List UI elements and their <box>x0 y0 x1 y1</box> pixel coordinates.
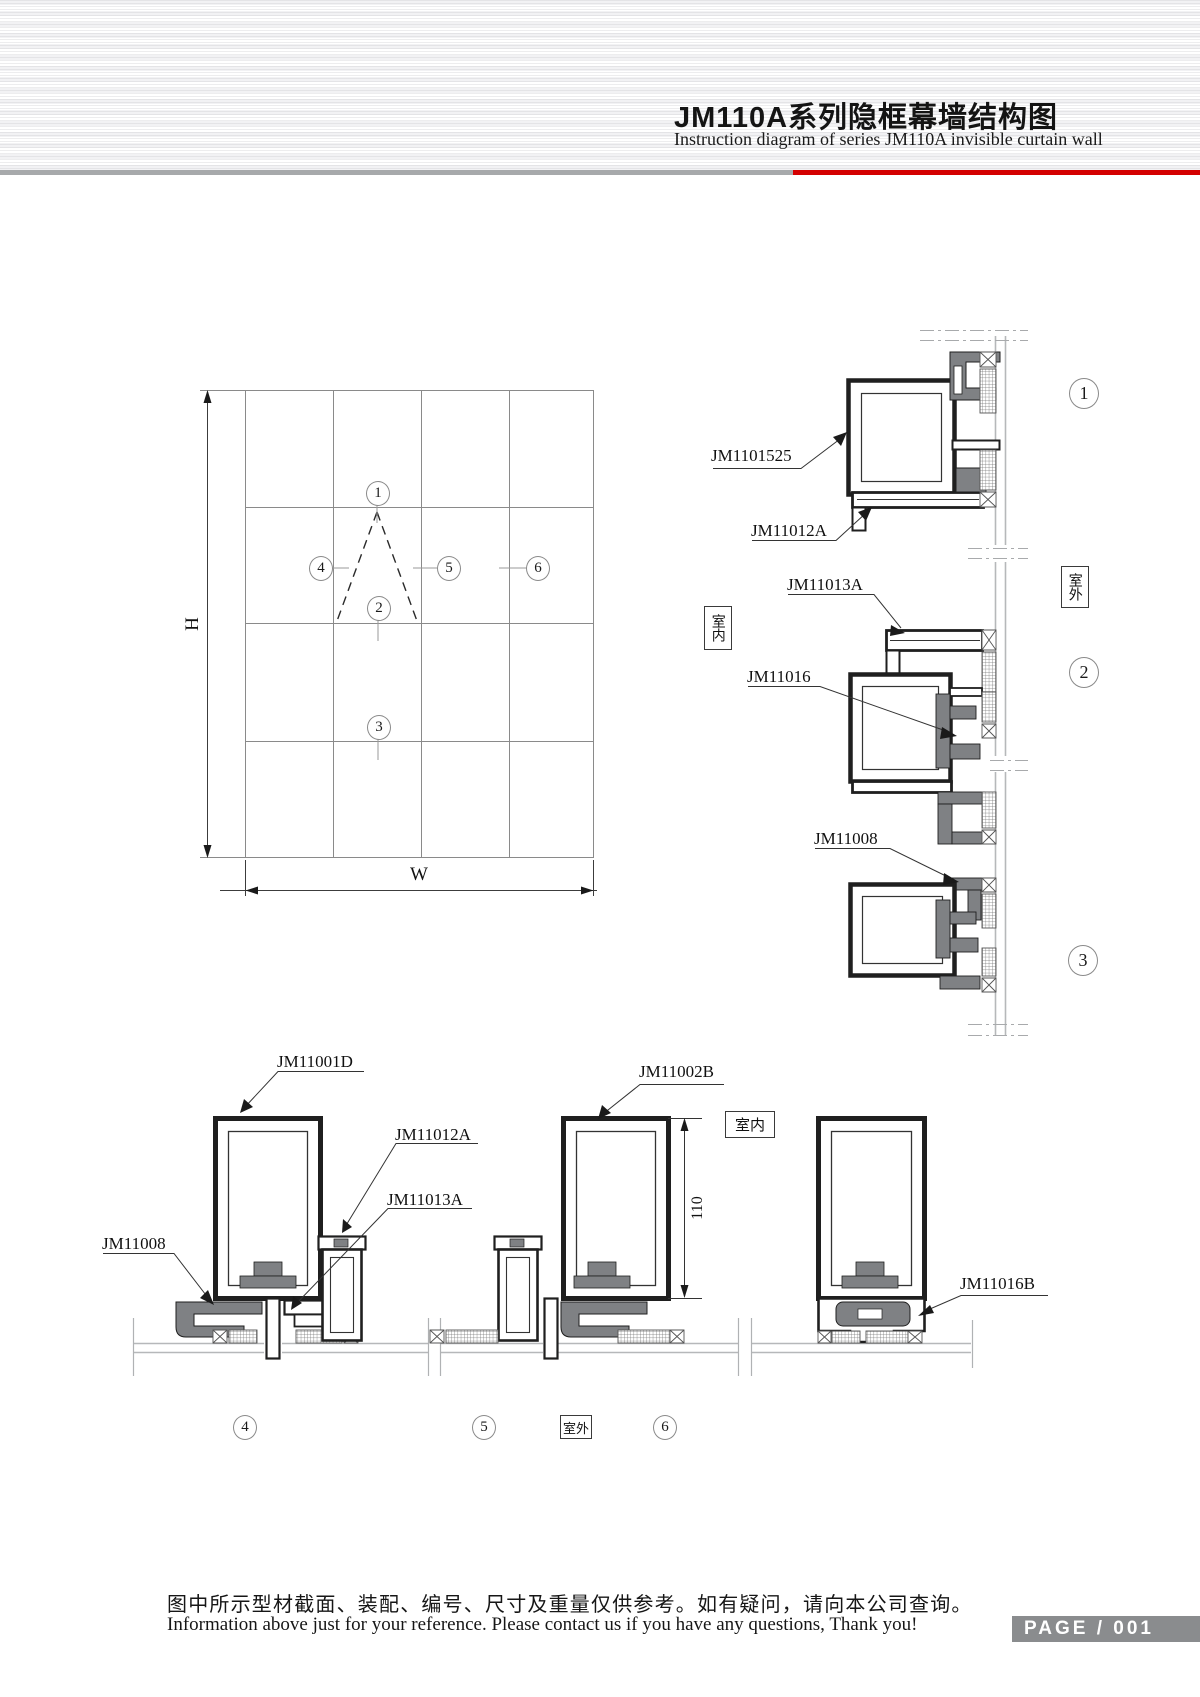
callout-4-grid: 4 <box>309 556 333 581</box>
detail-5-section <box>430 1118 702 1359</box>
part-label-jm11008: JM11008 <box>814 829 878 849</box>
part-label-jm11002b: JM11002B <box>639 1062 714 1082</box>
callout-leaders <box>331 505 527 760</box>
callout-5-detail: 5 <box>472 1415 496 1440</box>
outdoor-label-bottom: 室外 <box>560 1415 592 1439</box>
callout-3-grid: 3 <box>367 715 391 740</box>
callout-4-detail: 4 <box>233 1415 257 1440</box>
part-label-jm11016: JM11016 <box>747 667 811 687</box>
part-label-jm11012a: JM11012A <box>751 521 827 541</box>
callout-6-detail: 6 <box>653 1415 677 1440</box>
detail-2-section <box>748 595 996 845</box>
footer-note-en: Information above just for your referenc… <box>167 1614 917 1636</box>
elevation-grid <box>200 390 594 858</box>
indoor-label-vertical: 室内 <box>704 606 732 650</box>
part-label-jm1101525: JM1101525 <box>711 446 792 466</box>
dimension-arrows <box>204 390 594 895</box>
detail-4-section <box>176 1119 366 1359</box>
footer-note-zh: 图中所示型材截面、装配、编号、尺寸及重量仅供参考。如有疑问，请向本公司查询。 <box>167 1588 973 1617</box>
callout-1-detail: 1 <box>1069 378 1099 409</box>
part-label-jm11008-bottom: JM11008 <box>102 1234 166 1254</box>
callout-6-grid: 6 <box>526 556 550 581</box>
technical-drawing <box>0 0 1200 1697</box>
drawing-page: { "header": { "title_zh": "JM110A系列隐框幕墙结… <box>0 0 1200 1697</box>
callout-2-detail: 2 <box>1069 657 1099 688</box>
dim-110-label: 110 <box>689 1186 709 1230</box>
indoor-label-bottom: 室内 <box>725 1111 775 1138</box>
part-label-jm11001d: JM11001D <box>277 1052 353 1072</box>
part-label-jm11013a-bottom: JM11013A <box>387 1190 463 1210</box>
callout-3-detail: 3 <box>1068 945 1098 976</box>
page-number-badge: PAGE / 001 <box>1012 1616 1200 1642</box>
detail-6-section <box>818 1119 925 1344</box>
outdoor-label-vertical: 室外 <box>1061 566 1089 608</box>
callout-2-grid: 2 <box>367 596 391 621</box>
part-label-jm11012a-bottom: JM11012A <box>395 1125 471 1145</box>
callout-5-grid: 5 <box>437 556 461 581</box>
dimension-lines <box>208 392 598 896</box>
callout-1-grid: 1 <box>366 481 390 506</box>
detail-3-section <box>815 849 996 993</box>
part-label-jm11016b: JM11016B <box>960 1274 1035 1294</box>
dim-h-label: H <box>182 612 206 636</box>
part-label-jm11013a: JM11013A <box>787 575 863 595</box>
dim-w-label: W <box>407 864 431 886</box>
